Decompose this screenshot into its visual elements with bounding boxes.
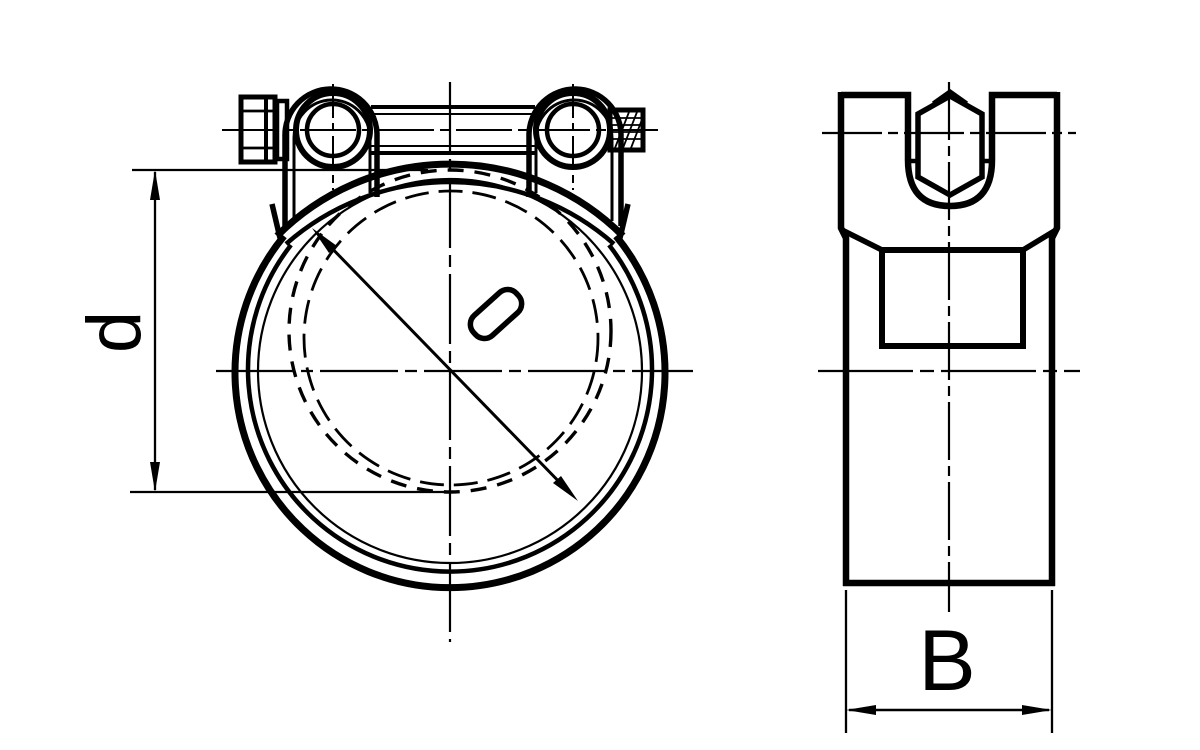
saddle-left-end-edge [272,204,280,238]
band-slot [465,285,526,344]
band-left-edge [841,92,846,586]
d-dimension-label: d [72,311,157,353]
band-right-edge [1052,92,1057,586]
front-view: d [72,82,693,642]
diameter-arrow-line [320,236,570,493]
b-dimension-label: B [918,613,975,709]
b-arrowhead-right [1022,705,1052,715]
band-window [882,250,1023,346]
side-view: B [818,82,1080,733]
d-arrowhead-down [150,462,160,492]
drawing-canvas: d [0,0,1200,750]
diameter-arrowhead-lower [553,476,578,501]
hose-clamp-technical-drawing: d [0,0,1200,750]
b-arrowhead-left [846,705,876,715]
d-arrowhead-up [150,170,160,200]
